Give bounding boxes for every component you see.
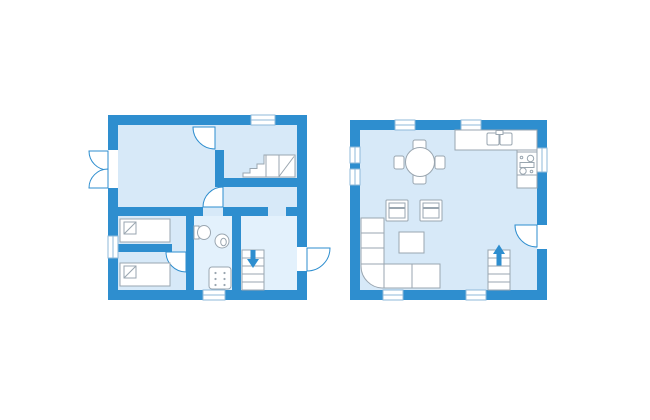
coffee-table-icon xyxy=(399,232,424,253)
washbasin-icon xyxy=(215,234,229,248)
single-bed-icon xyxy=(120,219,170,242)
middle-wall-left xyxy=(118,207,203,216)
double-door-opening xyxy=(108,150,118,188)
balcony-door-opening xyxy=(537,225,547,249)
middle-wall-right xyxy=(223,207,268,216)
bath-hall-wall xyxy=(232,216,241,290)
floorplan-canvas xyxy=(0,0,650,420)
stove-cooktop-icon xyxy=(517,152,537,175)
bedroom-divider-wall xyxy=(118,244,172,252)
entrance-door-opening xyxy=(297,247,307,271)
shower-icon xyxy=(209,267,231,289)
dining-chair-icon xyxy=(394,156,404,169)
staircase-up xyxy=(488,245,510,291)
upper-floor-plan xyxy=(350,120,547,300)
double-door-leaf-icon xyxy=(89,169,108,188)
floorplan-drawing xyxy=(0,0,650,420)
round-dining-table-icon xyxy=(406,148,435,177)
double-door-leaf-icon xyxy=(89,151,108,170)
toilet-icon xyxy=(194,226,211,240)
stair-room-bottom-wall xyxy=(215,178,307,187)
kitchen-sink-icon xyxy=(487,131,512,146)
staircase-down xyxy=(242,250,264,290)
entrance-door-swing-icon xyxy=(307,248,330,271)
bedroom-bath-wall xyxy=(186,216,194,290)
ground-floor-plan xyxy=(89,115,330,300)
armchair-icon xyxy=(420,200,442,221)
stair-room-left-wall xyxy=(215,150,224,178)
armchair-icon xyxy=(386,200,408,221)
wall-stub xyxy=(286,207,307,216)
single-bed-icon xyxy=(120,263,170,286)
dining-chair-icon xyxy=(435,156,445,169)
